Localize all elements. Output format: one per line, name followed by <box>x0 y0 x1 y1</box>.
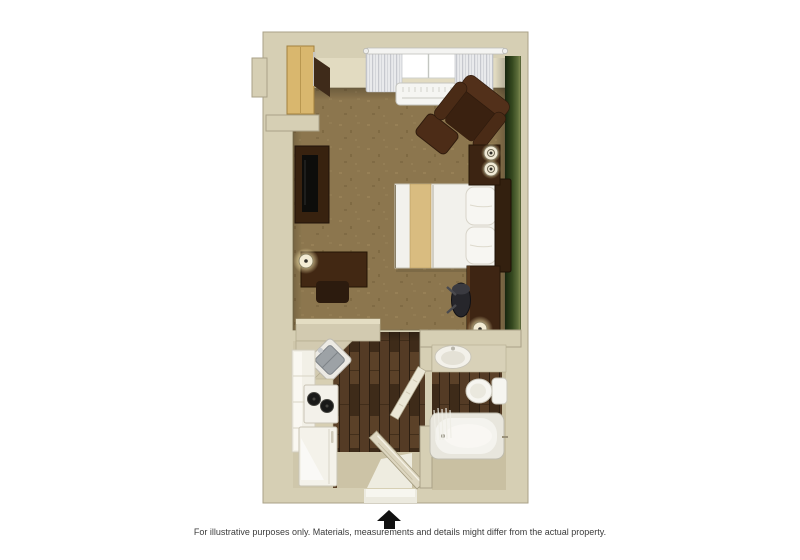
lamp-finial-1 <box>490 152 493 155</box>
fridge-handle <box>331 431 334 443</box>
table-lamp-finial <box>304 259 308 263</box>
toilet <box>466 378 507 404</box>
lamp-finial-2 <box>490 168 493 171</box>
floor-plan-svg <box>0 0 800 560</box>
headboard <box>495 179 511 272</box>
rod-finial-right <box>502 48 507 53</box>
plan-container: For illustrative purposes only. Material… <box>0 0 800 560</box>
peninsula-counter-edge <box>296 319 380 324</box>
towel-hook <box>502 436 508 438</box>
closet-stub-wall <box>266 115 319 131</box>
burner-1-center <box>313 398 316 401</box>
stove <box>304 385 338 423</box>
vanity-sink-bowl <box>441 351 465 365</box>
toilet-seat <box>470 384 486 399</box>
tv-screen <box>302 155 318 212</box>
toilet-tank <box>492 378 507 404</box>
bathroom-left-wall-upper <box>420 347 432 371</box>
tv-console <box>295 146 329 223</box>
disclaimer-text: For illustrative purposes only. Material… <box>0 527 800 539</box>
bathtub-group <box>430 408 508 459</box>
burner-2-center <box>326 405 329 408</box>
vanity <box>432 345 506 372</box>
bed <box>395 179 511 272</box>
vanity-faucet <box>451 347 455 351</box>
bottom-doorway-light <box>366 489 415 497</box>
rod-finial-left <box>363 48 368 53</box>
stool <box>316 281 349 303</box>
curtain-rod <box>365 48 506 54</box>
wall-notch <box>252 58 267 97</box>
gold-bed-runner <box>410 184 431 268</box>
bathroom-front-wall <box>420 330 521 347</box>
refrigerator <box>299 427 337 486</box>
nightstand-group <box>469 143 501 185</box>
